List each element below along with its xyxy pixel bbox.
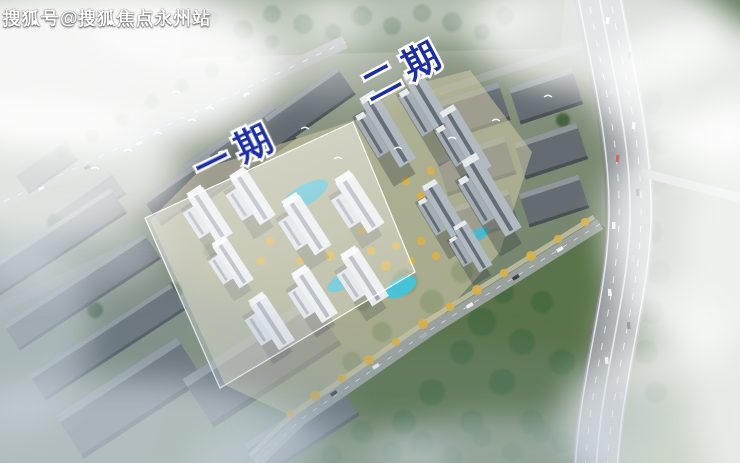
scene-canvas: 一期 二期: [0, 0, 740, 463]
aerial-rendering: 一期 二期 搜狐号@搜狐焦点永州站: [0, 0, 740, 463]
watermark-text: 搜狐号@搜狐焦点永州站: [3, 6, 212, 30]
